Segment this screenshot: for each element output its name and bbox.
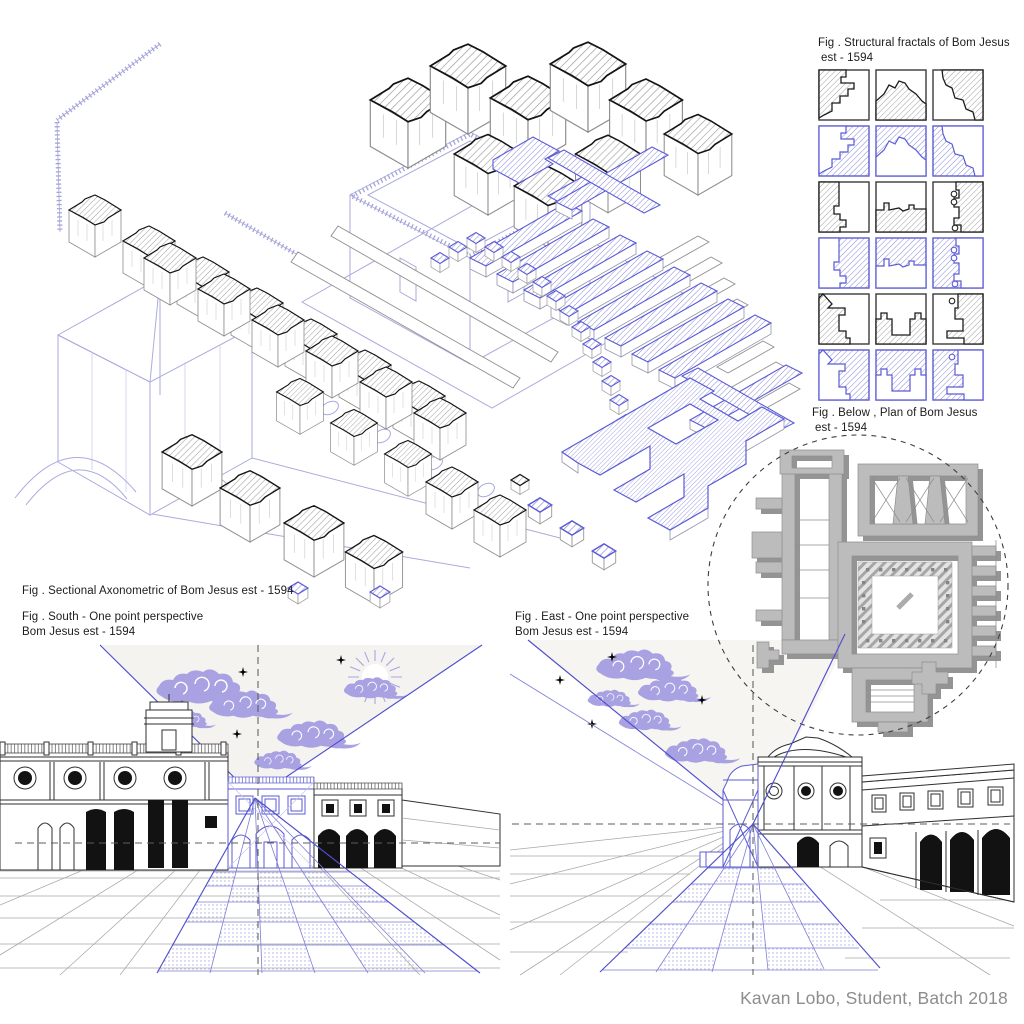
caption-line: Fig . South - One point perspective: [22, 611, 203, 623]
facade-tower: [144, 694, 194, 752]
caption-line: Fig . East - One point perspective: [515, 611, 689, 623]
credit-text: Kavan Lobo, Student, Batch 2018: [740, 988, 1008, 1009]
plan-caption: Fig . Below , Plan of Bom Jesus est - 15…: [812, 406, 977, 435]
axonometric-caption: Fig . Sectional Axonometric of Bom Jesus…: [22, 584, 294, 599]
fractals-caption: Fig . Structural fractals of Bom Jesus e…: [818, 36, 1010, 65]
caption-line: est - 1594: [815, 422, 867, 434]
presentation-board: Fig . Structural fractals of Bom Jesus e…: [0, 0, 1024, 1024]
caption-line: Fig . Sectional Axonometric of Bom Jesus…: [22, 585, 294, 597]
fractal-grid: [815, 64, 987, 404]
caption-line: Fig . Structural fractals of Bom Jesus: [818, 37, 1010, 49]
south-caption: Fig . South - One point perspective Bom …: [22, 610, 203, 639]
right-wing-arcade: [314, 783, 402, 868]
cone-line-overlay: [505, 628, 1024, 985]
caption-line: Bom Jesus est - 1594: [22, 626, 135, 638]
caption-line: Fig . Below , Plan of Bom Jesus: [812, 407, 977, 419]
caption-line: Bom Jesus est - 1594: [515, 626, 628, 638]
east-caption: Fig . East - One point perspective Bom J…: [515, 610, 689, 639]
caption-line: est - 1594: [821, 52, 873, 64]
perspective-south-drawing: [0, 640, 505, 985]
